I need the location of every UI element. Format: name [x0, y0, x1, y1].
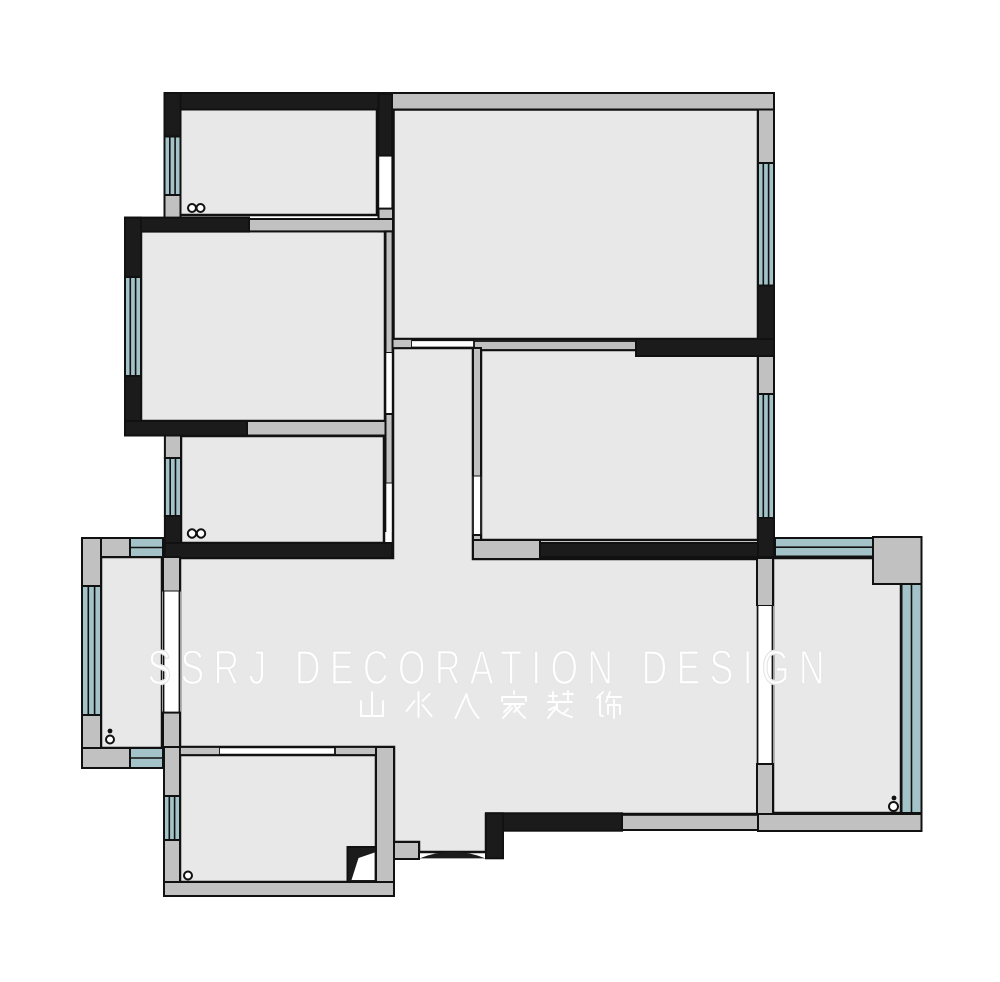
svg-text:SSRJ DECORATION DESIGN: SSRJ DECORATION DESIGN: [147, 641, 824, 694]
